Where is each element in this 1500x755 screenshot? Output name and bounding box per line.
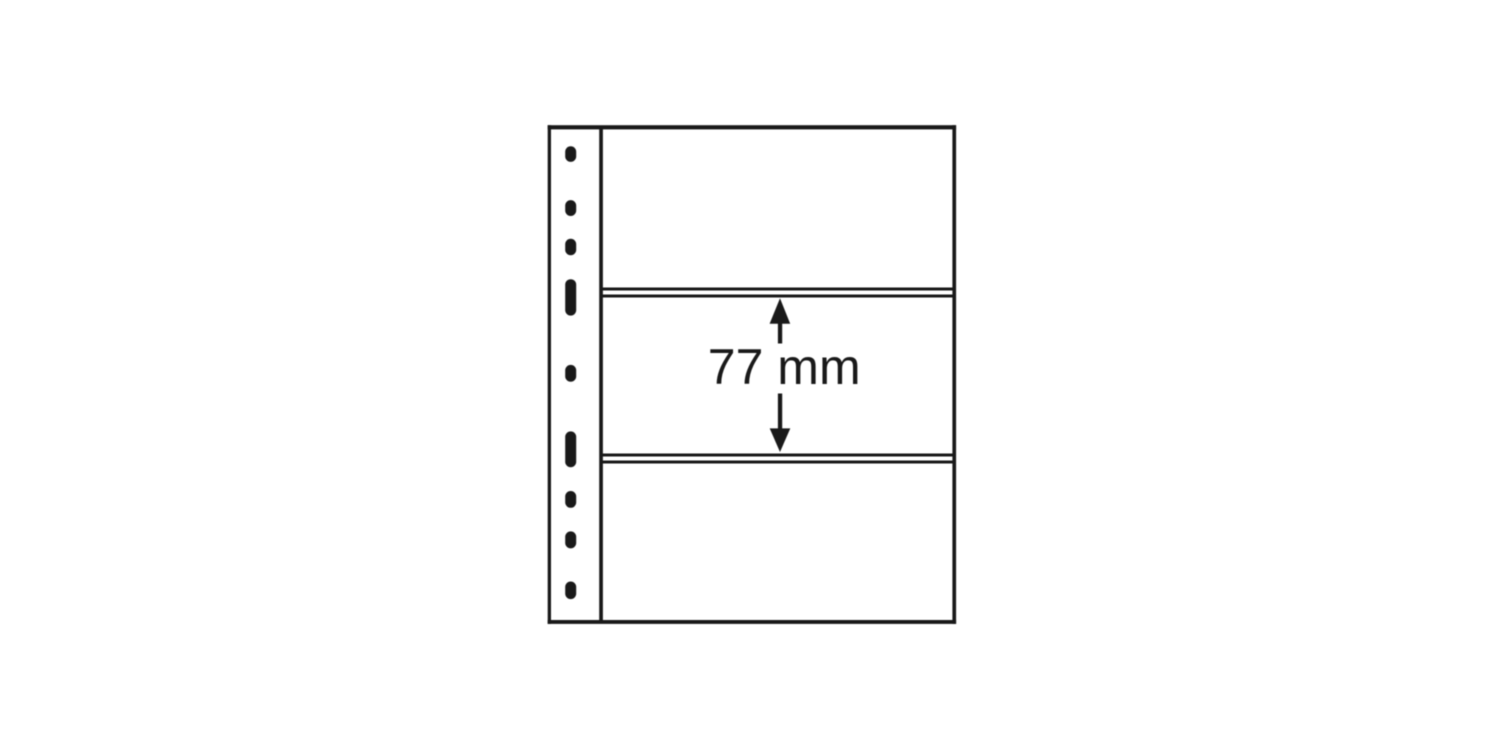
svg-text:77 mm: 77 mm — [708, 339, 861, 395]
